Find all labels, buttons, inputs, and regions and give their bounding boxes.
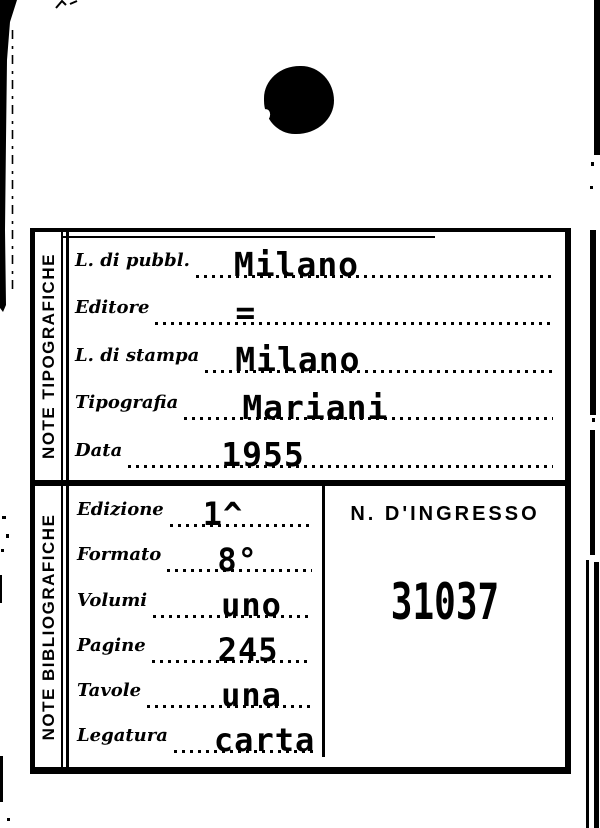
top-border-echo-line <box>63 236 435 238</box>
field-line: carta <box>174 726 315 755</box>
field-label: Data <box>75 440 122 470</box>
tipografiche-fields: L. di pubbl. Milano Editore = L. di stam… <box>69 232 565 480</box>
field-editore: Editore = <box>75 284 553 332</box>
field-label: Volumi <box>77 590 147 620</box>
field-pagine: Pagine 245 <box>77 624 312 669</box>
side-label-bibliografiche: NOTE BIBLIOGRAFICHE <box>39 513 59 740</box>
field-line: una <box>147 681 312 710</box>
field-label: Tavole <box>77 680 141 710</box>
section-note-bibliografiche: NOTE BIBLIOGRAFICHE Edizione 1^ Formato … <box>35 486 565 767</box>
field-value: uno <box>221 591 282 620</box>
field-value: 8° <box>217 546 258 575</box>
field-line: 1^ <box>170 500 312 529</box>
side-label-column: NOTE BIBLIOGRAFICHE <box>35 486 61 767</box>
field-line: = <box>155 298 553 328</box>
field-label: L. di pubbl. <box>75 250 190 280</box>
dotted-leader <box>155 322 553 325</box>
field-luogo-stampa: L. di stampa Milano <box>75 331 553 379</box>
field-line: Milano <box>205 345 553 375</box>
section-note-tipografiche: NOTE TIPOGRAFICHE L. di pubbl. Milano Ed… <box>35 232 565 480</box>
field-tavole: Tavole una <box>77 669 312 714</box>
field-line: uno <box>153 591 312 620</box>
field-value: 245 <box>218 636 279 665</box>
dotted-leader <box>128 465 553 468</box>
field-value: carta <box>214 726 315 755</box>
field-value: 1955 <box>221 440 304 470</box>
field-label: Editore <box>75 297 149 327</box>
field-formato: Formato 8° <box>77 533 312 578</box>
field-volumi: Volumi uno <box>77 578 312 623</box>
field-label: Formato <box>77 544 161 574</box>
field-value: Milano <box>234 250 359 280</box>
field-legatura: Legatura carta <box>77 714 312 759</box>
field-data: Data 1955 <box>75 426 553 474</box>
double-rule <box>61 232 69 480</box>
field-edizione: Edizione 1^ <box>77 488 312 533</box>
field-luogo-pubblicazione: L. di pubbl. Milano <box>75 236 553 284</box>
field-label: Legatura <box>77 725 168 755</box>
ingresso-box: N. D'INGRESSO 31037 <box>325 486 565 767</box>
bibliografiche-fields: Edizione 1^ Formato 8° Volumi <box>69 486 322 767</box>
field-tipografia: Tipografia Mariani <box>75 379 553 427</box>
double-rule <box>61 486 69 767</box>
field-label: Pagine <box>77 635 146 665</box>
field-value: 1^ <box>203 500 244 529</box>
field-line: 245 <box>152 636 312 665</box>
field-value: = <box>235 298 256 328</box>
field-label: Edizione <box>77 499 164 529</box>
field-line: 8° <box>167 546 312 575</box>
field-value: Mariani <box>242 393 388 423</box>
side-label-tipografiche: NOTE TIPOGRAFICHE <box>39 253 59 459</box>
ink-blot <box>264 66 334 134</box>
field-label: Tipografia <box>75 392 178 422</box>
field-label: L. di stampa <box>75 345 199 375</box>
field-line: 1955 <box>128 440 553 470</box>
ingresso-number: 31037 <box>359 573 532 631</box>
side-label-column: NOTE TIPOGRAFICHE <box>35 232 61 480</box>
field-value: Milano <box>235 345 360 375</box>
field-line: Milano <box>196 250 553 280</box>
field-line: Mariani <box>184 393 553 423</box>
scanned-catalog-card-page: NOTE TIPOGRAFICHE L. di pubbl. Milano Ed… <box>0 0 600 828</box>
ingresso-label: N. D'INGRESSO <box>325 503 565 526</box>
field-value: una <box>221 681 282 710</box>
catalog-card: NOTE TIPOGRAFICHE L. di pubbl. Milano Ed… <box>30 228 571 774</box>
